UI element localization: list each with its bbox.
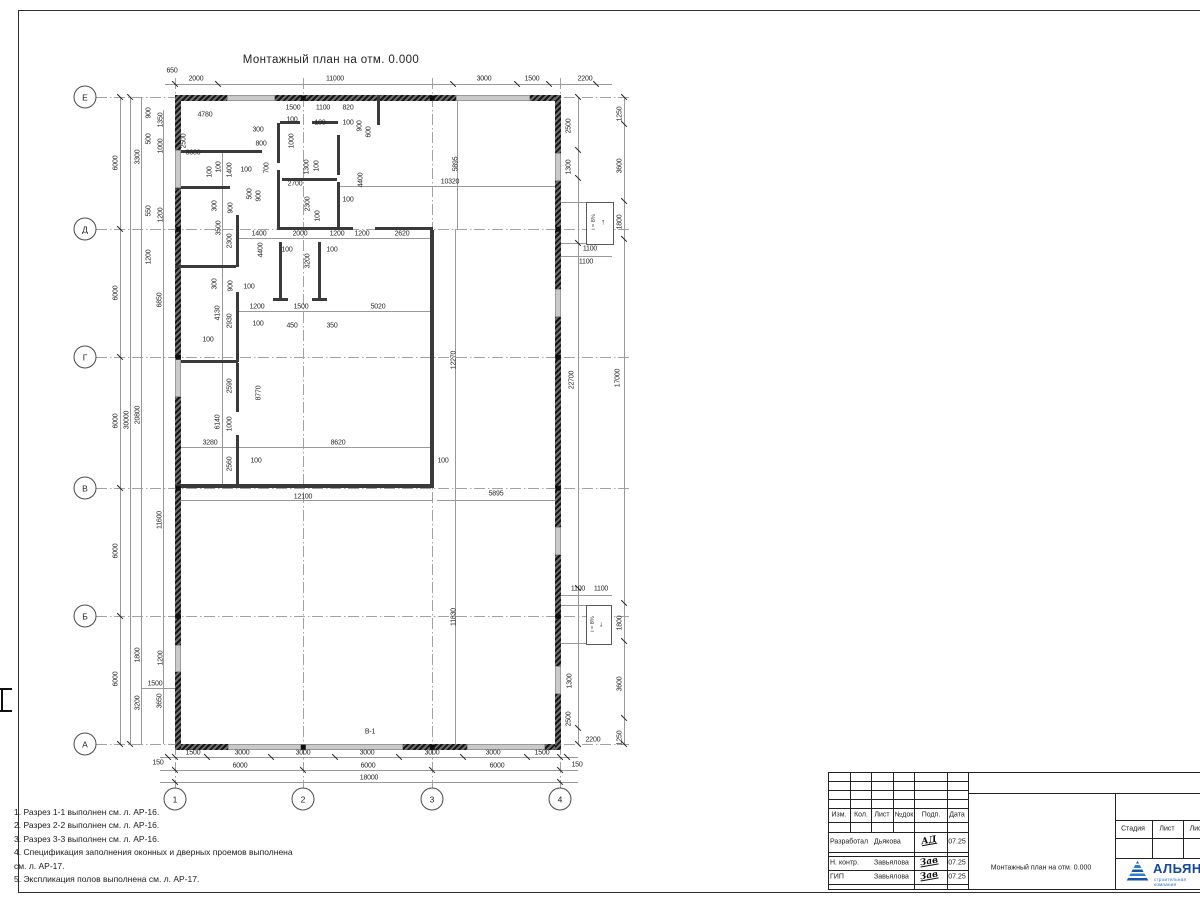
dim-label: 3680 bbox=[186, 150, 201, 157]
dim-label: 3300 bbox=[135, 150, 142, 165]
dim-label: 10320 bbox=[441, 179, 459, 186]
dimension-line bbox=[561, 202, 586, 203]
dim-label: 3600 bbox=[617, 677, 624, 692]
axis-circle: В bbox=[74, 477, 97, 500]
note-line: см. л. АР-17. bbox=[14, 860, 293, 873]
stamp-role-gip: ГИП bbox=[830, 874, 844, 881]
outer-wall bbox=[555, 95, 561, 750]
dim-label: 1100 bbox=[594, 586, 608, 593]
dim-label: 100 bbox=[342, 197, 353, 204]
stamp-doc-title: Монтажный план на отм. 0.000 bbox=[991, 865, 1092, 872]
column-marker bbox=[430, 96, 435, 101]
dim-label: 100 bbox=[207, 166, 214, 177]
dim-label: 12100 bbox=[294, 494, 312, 501]
window-opening bbox=[555, 666, 561, 694]
note-line: 2. Разрез 2-2 выполнен см. л. АР-16. bbox=[14, 819, 293, 832]
dim-label: 30000 bbox=[124, 411, 131, 429]
window-opening bbox=[175, 645, 181, 672]
dim-label: 2300 bbox=[305, 197, 312, 212]
dim-label: 2620 bbox=[395, 231, 410, 238]
dim-label: 11830 bbox=[451, 608, 458, 626]
dim-label: 8620 bbox=[331, 440, 346, 447]
note-line: 5. Экспликация полов выполнена см. л. АР… bbox=[14, 873, 293, 886]
ramp-direction-arrow: ↓ bbox=[599, 620, 603, 629]
partition-wall bbox=[318, 242, 321, 300]
partition-wall bbox=[175, 360, 238, 363]
dimension-line bbox=[561, 595, 612, 596]
column-marker bbox=[176, 486, 181, 491]
stamp-col-sheet: Лист bbox=[1159, 826, 1174, 833]
dim-label: 3650 bbox=[157, 694, 164, 709]
note-line: 4. Спецификация заполнения оконных и две… bbox=[14, 846, 293, 859]
dimension-line bbox=[160, 757, 578, 758]
dim-label: 2000 bbox=[293, 231, 308, 238]
dimension-line bbox=[222, 152, 223, 488]
dim-label: 650 bbox=[166, 68, 177, 75]
dim-label: 1100 bbox=[579, 259, 593, 266]
dim-label: 3200 bbox=[305, 254, 312, 269]
dim-label: 1000 bbox=[227, 417, 234, 432]
axis-circle: 4 bbox=[549, 788, 572, 811]
dim-label: 800 bbox=[255, 141, 266, 148]
dim-label: 1250 bbox=[617, 107, 624, 122]
dim-label: 3600 bbox=[617, 159, 624, 174]
dim-label: 20800 bbox=[135, 406, 142, 424]
column-marker bbox=[301, 96, 306, 101]
dimension-line bbox=[141, 688, 175, 689]
dim-label: 6000 bbox=[113, 286, 120, 301]
column-marker bbox=[556, 355, 561, 360]
dim-label: 1100 bbox=[583, 246, 597, 253]
stamp-date: 07.25 bbox=[948, 874, 966, 881]
partition-wall bbox=[236, 215, 239, 267]
column-marker bbox=[176, 355, 181, 360]
dimension-line bbox=[160, 782, 578, 783]
dim-label: 1500 bbox=[148, 681, 163, 688]
partition-wall bbox=[337, 135, 340, 175]
dim-label: 3280 bbox=[203, 440, 218, 447]
dim-label: 1100 bbox=[571, 586, 585, 593]
dim-label: 300 bbox=[212, 200, 219, 211]
dim-label: 1350 bbox=[158, 113, 165, 128]
partition-wall bbox=[430, 230, 434, 488]
dim-label: 900 bbox=[228, 202, 235, 213]
dim-label: 3000 bbox=[296, 750, 311, 757]
dim-label: 100 bbox=[286, 117, 297, 124]
window-opening bbox=[467, 744, 545, 750]
stamp-date: 07.25 bbox=[948, 839, 966, 846]
dimension-line bbox=[455, 229, 456, 744]
dim-label: 1300 bbox=[566, 160, 573, 175]
dim-label: 1500 bbox=[294, 304, 309, 311]
dim-label: 6000 bbox=[361, 763, 376, 770]
dim-label: 4400 bbox=[258, 243, 265, 258]
dim-label: 2000 bbox=[189, 76, 204, 83]
dim-label: 1800 bbox=[135, 648, 142, 663]
stamp-col-podp: Подп. bbox=[922, 812, 941, 819]
dim-label: 8770 bbox=[256, 386, 263, 401]
dim-label: 2200 bbox=[586, 737, 601, 744]
dim-label: 6000 bbox=[113, 544, 120, 559]
dim-label: 1800 bbox=[617, 616, 624, 631]
sheet-frame bbox=[18, 10, 1200, 893]
dim-label: 3000 bbox=[477, 76, 492, 83]
dim-label: 1200 bbox=[158, 208, 165, 223]
dim-label: 2500 bbox=[566, 119, 573, 134]
dim-label: 100 bbox=[243, 284, 254, 291]
format-mark bbox=[1, 688, 3, 711]
dim-label: 300 bbox=[252, 127, 263, 134]
partition-wall bbox=[175, 484, 434, 488]
dim-label: 2700 bbox=[288, 181, 303, 188]
dim-label: 100 bbox=[314, 120, 325, 127]
stamp-col-doc: №док bbox=[895, 812, 914, 819]
stamp-col-list: Лист bbox=[874, 812, 889, 819]
dim-label: 5895 bbox=[453, 157, 460, 172]
dimension-line bbox=[163, 110, 164, 744]
dimension-line bbox=[237, 311, 432, 312]
window-opening bbox=[227, 95, 275, 101]
dim-label: 17000 bbox=[615, 369, 622, 387]
window-opening bbox=[175, 358, 181, 397]
column-marker bbox=[176, 227, 181, 232]
dim-label: 100 bbox=[437, 458, 448, 465]
dim-label: 18000 bbox=[360, 775, 378, 782]
dim-label: 1200 bbox=[158, 651, 165, 666]
dim-label: 5895 bbox=[489, 491, 504, 498]
window-opening bbox=[555, 527, 561, 555]
dim-label: 1100 bbox=[316, 105, 330, 112]
partition-wall bbox=[273, 298, 288, 301]
dim-label: 6000 bbox=[113, 414, 120, 429]
partition-wall bbox=[337, 182, 340, 229]
company-logo-name: АЛЬЯНС bbox=[1153, 861, 1200, 876]
dim-label: 1250 bbox=[617, 731, 624, 746]
stamp-col-stadia: Стадия bbox=[1121, 826, 1145, 833]
dim-label: 100 bbox=[281, 247, 292, 254]
dim-label: 1000 bbox=[158, 139, 165, 154]
dim-label: 2300 bbox=[227, 234, 234, 249]
partition-wall bbox=[277, 123, 280, 163]
stamp-col-izm: Изм. bbox=[832, 812, 847, 819]
dim-label: 700 bbox=[264, 162, 271, 173]
axis-line bbox=[303, 78, 304, 788]
dim-label: 2590 bbox=[227, 379, 234, 394]
dim-label: 1500 bbox=[286, 105, 301, 112]
stamp-col-sheets: Листов bbox=[1190, 826, 1200, 833]
window-opening bbox=[175, 150, 181, 188]
window-opening bbox=[555, 153, 561, 181]
dim-label: 2560 bbox=[227, 457, 234, 472]
dim-label: 1500 bbox=[186, 750, 201, 757]
dim-label: 2930 bbox=[227, 314, 234, 329]
dim-label: 100 bbox=[250, 458, 261, 465]
dim-label: 550 bbox=[146, 205, 153, 216]
dim-label: 100 bbox=[252, 321, 263, 328]
dim-label: 11600 bbox=[157, 511, 164, 529]
dim-label: 900 bbox=[357, 120, 364, 131]
partition-wall bbox=[236, 435, 239, 488]
dim-label: 4400 bbox=[358, 173, 365, 188]
dim-label: 150 bbox=[571, 762, 582, 769]
dim-label: 900 bbox=[146, 107, 153, 118]
dim-label: 3000 bbox=[360, 750, 375, 757]
note-line: 1. Разрез 1-1 выполнен см. л. АР-16. bbox=[14, 806, 293, 819]
ramp-slope-label: i = 8% bbox=[591, 214, 597, 229]
ramp-slope-label: i = 8% bbox=[590, 616, 596, 631]
stamp-col-kol: Кол. bbox=[854, 812, 868, 819]
dim-label: 6140 bbox=[215, 415, 222, 430]
partition-wall bbox=[175, 186, 230, 189]
dim-label: 450 bbox=[286, 323, 297, 330]
dim-label: 350 bbox=[326, 323, 337, 330]
dimension-line bbox=[237, 238, 432, 239]
dim-label: 1500 bbox=[535, 750, 550, 757]
dim-label: 100 bbox=[326, 247, 337, 254]
dim-label: 900 bbox=[228, 280, 235, 291]
dim-label: 2500 bbox=[566, 712, 573, 727]
dim-label: 2500 bbox=[181, 134, 188, 149]
column-marker bbox=[556, 486, 561, 491]
dim-label: 300 bbox=[212, 278, 219, 289]
window-opening bbox=[555, 289, 561, 317]
column-marker bbox=[176, 614, 181, 619]
column-marker bbox=[556, 614, 561, 619]
dim-label: 1200 bbox=[330, 231, 345, 238]
dim-label: 1200 bbox=[146, 250, 153, 265]
dim-label: 22700 bbox=[569, 371, 576, 389]
dim-label: 3000 bbox=[425, 750, 440, 757]
stamp-role-ncontrol: Н. контр. bbox=[830, 860, 859, 867]
dim-label: 1300 bbox=[304, 160, 311, 175]
page-title: Монтажный план на отм. 0.000 bbox=[243, 54, 419, 66]
window-opening bbox=[228, 744, 403, 750]
dimension-line bbox=[561, 243, 586, 244]
dim-label: 11000 bbox=[326, 76, 344, 83]
dimension-line bbox=[160, 770, 578, 771]
dim-label: 4130 bbox=[215, 306, 222, 321]
window-opening bbox=[456, 95, 530, 101]
column-marker bbox=[556, 227, 561, 232]
stamp-name-developer: Дьякова bbox=[874, 839, 901, 846]
dimension-line bbox=[561, 256, 612, 257]
dim-label: 1400 bbox=[227, 163, 234, 178]
stamp-date: 07.25 bbox=[948, 860, 966, 867]
dim-label: 100 bbox=[314, 160, 321, 171]
dim-label: 100 bbox=[240, 167, 251, 174]
dimension-line bbox=[561, 605, 586, 606]
dimension-line bbox=[165, 84, 612, 85]
dim-label: 1200 bbox=[355, 231, 370, 238]
axis-circle: Б bbox=[74, 605, 97, 628]
dim-label: 100 bbox=[216, 161, 223, 172]
dim-label: 1800 bbox=[617, 215, 624, 230]
dim-label: 5020 bbox=[371, 304, 386, 311]
partition-wall bbox=[236, 363, 239, 412]
axis-circle: Е bbox=[74, 86, 97, 109]
company-logo-tagline: строительная компания bbox=[1154, 877, 1200, 887]
dim-label: 6850 bbox=[157, 293, 164, 308]
dimension-line bbox=[176, 447, 432, 448]
dim-label: 6000 bbox=[490, 763, 505, 770]
dimension-line bbox=[120, 97, 121, 744]
ramp-direction-arrow: ↑ bbox=[601, 218, 605, 227]
dim-label: 500 bbox=[146, 133, 153, 144]
dim-label: 6000 bbox=[233, 763, 248, 770]
dim-label: 6000 bbox=[113, 156, 120, 171]
dim-label: 3500 bbox=[216, 221, 223, 236]
dim-label: 12270 bbox=[451, 351, 458, 369]
dim-label: 1000 bbox=[289, 134, 296, 149]
dimension-line bbox=[561, 643, 586, 644]
dim-label: 820 bbox=[342, 105, 353, 112]
dim-label: 3000 bbox=[235, 750, 250, 757]
stamp-name-gip: Завьялова bbox=[874, 874, 909, 881]
dim-label: 6000 bbox=[113, 672, 120, 687]
drawing-sheet: Монтажный план на отм. 0.000 65020001100… bbox=[0, 0, 1200, 900]
dim-label: 1500 bbox=[525, 76, 540, 83]
axis-circle: А bbox=[74, 733, 97, 756]
dim-label: 1300 bbox=[567, 674, 574, 689]
dim-label: 900 bbox=[256, 190, 263, 201]
dimension-line bbox=[340, 186, 556, 187]
stamp-name-ncontrol: Завьялова bbox=[874, 860, 909, 867]
stamp-role-developer: Разработал bbox=[830, 839, 868, 846]
axis-circle: 3 bbox=[421, 788, 444, 811]
dim-label: 1200 bbox=[250, 304, 265, 311]
stamp-col-data: Дата bbox=[949, 812, 965, 819]
dim-label: 150 bbox=[152, 760, 163, 767]
dimension-line bbox=[578, 97, 579, 744]
partition-wall bbox=[377, 95, 380, 125]
dim-label: 100 bbox=[202, 337, 213, 344]
dim-label: 1400 bbox=[252, 231, 267, 238]
notes-block: 1. Разрез 1-1 выполнен см. л. АР-16.2. Р… bbox=[14, 806, 293, 886]
partition-wall bbox=[236, 292, 239, 362]
dim-label: 4780 bbox=[198, 112, 213, 119]
dimension-line bbox=[624, 97, 625, 744]
dim-label: 2200 bbox=[578, 76, 593, 83]
dim-label: 600 bbox=[366, 126, 373, 137]
axis-circle: Г bbox=[74, 346, 97, 369]
dim-label: 500 bbox=[247, 188, 254, 199]
dim-label: 100 bbox=[315, 210, 322, 221]
window-mark-label: В-1 bbox=[365, 729, 375, 736]
partition-wall bbox=[312, 298, 327, 301]
dim-label: 3000 bbox=[486, 750, 501, 757]
partition-wall bbox=[277, 170, 280, 230]
partition-wall bbox=[175, 265, 236, 268]
dim-label: 100 bbox=[342, 120, 353, 127]
dim-label: 3200 bbox=[135, 696, 142, 711]
axis-circle: Д bbox=[74, 218, 97, 241]
axis-circle: 2 bbox=[292, 788, 315, 811]
note-line: 3. Разрез 3-3 выполнен см. л. АР-16. bbox=[14, 833, 293, 846]
